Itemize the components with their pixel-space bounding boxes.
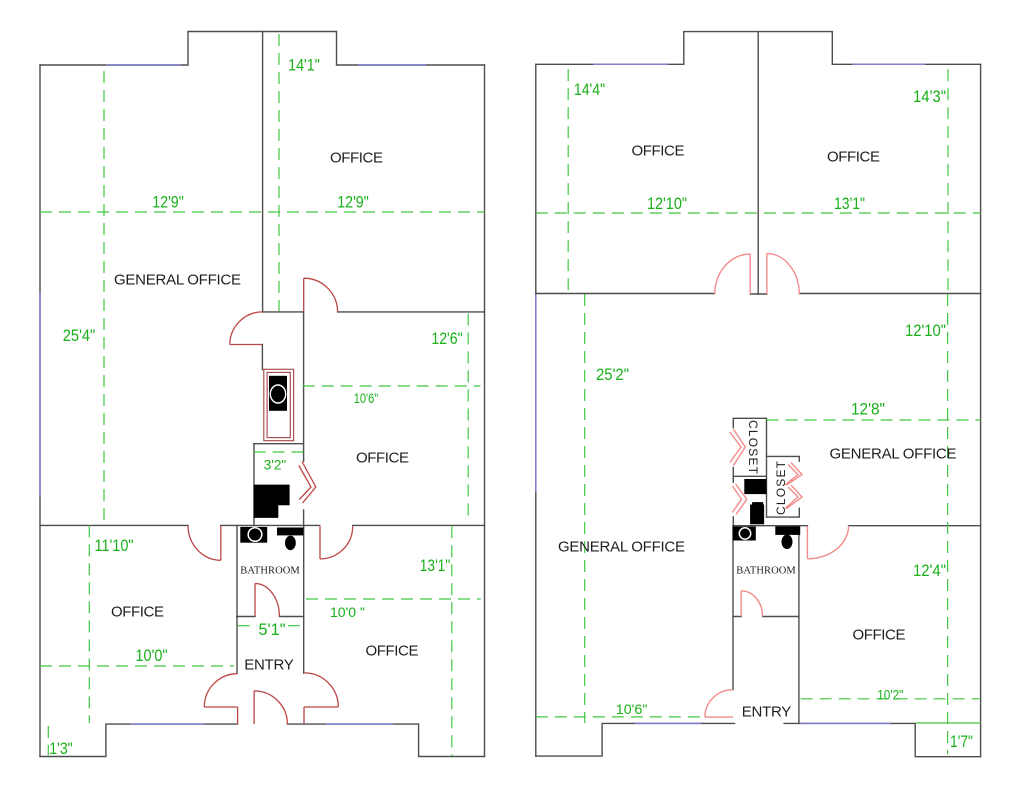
svg-text:OFFICE: OFFICE: [356, 449, 409, 466]
svg-text:5'1": 5'1": [259, 620, 286, 639]
svg-text:OFFICE: OFFICE: [366, 642, 419, 659]
svg-text:CLOSET: CLOSET: [746, 420, 760, 475]
svg-text:12'8": 12'8": [851, 399, 885, 418]
svg-text:BATHROOM: BATHROOM: [240, 566, 300, 577]
svg-text:12'10": 12'10": [647, 194, 687, 213]
svg-text:OFFICE: OFFICE: [330, 149, 383, 166]
svg-text:12'6": 12'6": [431, 329, 462, 348]
svg-text:13'1": 13'1": [834, 194, 865, 213]
svg-text:13'1": 13'1": [420, 556, 450, 575]
svg-text:14'1": 14'1": [288, 56, 320, 75]
svg-text:12'4": 12'4": [913, 561, 946, 580]
svg-text:OFFICE: OFFICE: [632, 142, 685, 159]
svg-text:GENERAL OFFICE: GENERAL OFFICE: [830, 445, 957, 462]
svg-text:OFFICE: OFFICE: [111, 603, 164, 620]
svg-text:12'9": 12'9": [152, 193, 184, 212]
svg-text:ENTRY: ENTRY: [742, 703, 792, 720]
svg-text:BATHROOM: BATHROOM: [736, 566, 796, 577]
svg-text:OFFICE: OFFICE: [853, 626, 906, 643]
svg-text:14'4": 14'4": [574, 80, 605, 99]
svg-text:12'9": 12'9": [337, 193, 369, 212]
svg-text:10'0 ": 10'0 ": [330, 605, 365, 620]
svg-text:10'2": 10'2": [877, 687, 903, 702]
svg-text:14'3": 14'3": [913, 87, 946, 106]
svg-text:1'7": 1'7": [950, 732, 973, 751]
svg-text:25'4": 25'4": [63, 326, 96, 345]
svg-text:10'6": 10'6": [354, 391, 379, 406]
svg-text:1'3": 1'3": [49, 739, 72, 758]
svg-text:OFFICE: OFFICE: [827, 148, 880, 165]
svg-text:11'10": 11'10": [95, 536, 134, 555]
svg-text:12'10": 12'10": [905, 321, 946, 340]
svg-text:10'0": 10'0": [136, 646, 168, 665]
svg-text:GENERAL OFFICE: GENERAL OFFICE: [114, 271, 241, 288]
svg-text:10'6": 10'6": [616, 701, 648, 717]
svg-text:CLOSET: CLOSET: [774, 460, 788, 515]
svg-text:25'2": 25'2": [596, 365, 629, 384]
svg-text:ENTRY: ENTRY: [244, 656, 294, 673]
svg-text:GENERAL OFFICE: GENERAL OFFICE: [558, 538, 685, 555]
svg-text:3'2": 3'2": [264, 457, 287, 472]
